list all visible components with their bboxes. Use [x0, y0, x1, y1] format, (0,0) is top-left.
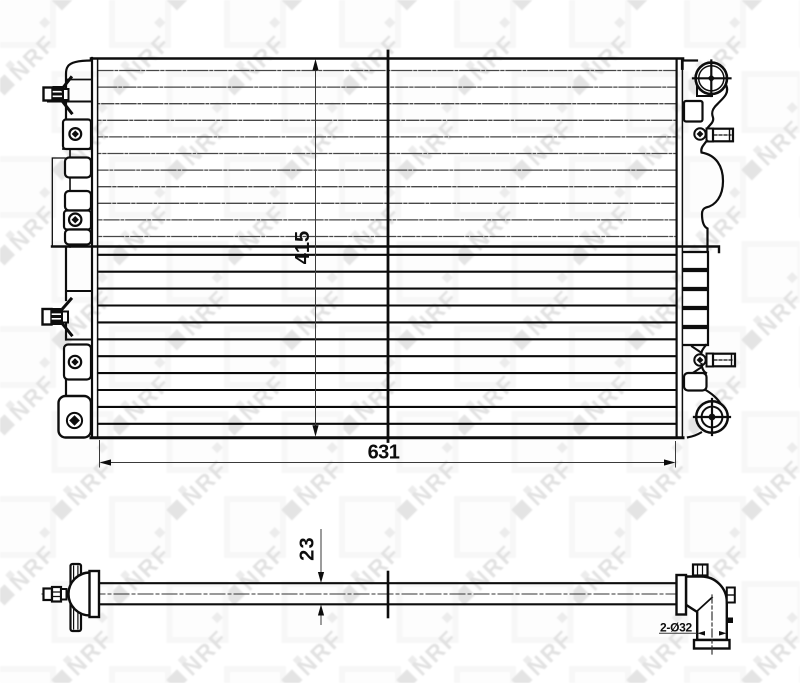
svg-text:2-Ø32: 2-Ø32: [660, 621, 692, 635]
svg-text:415: 415: [292, 231, 314, 264]
svg-text:631: 631: [368, 442, 400, 464]
svg-text:23: 23: [297, 536, 319, 561]
